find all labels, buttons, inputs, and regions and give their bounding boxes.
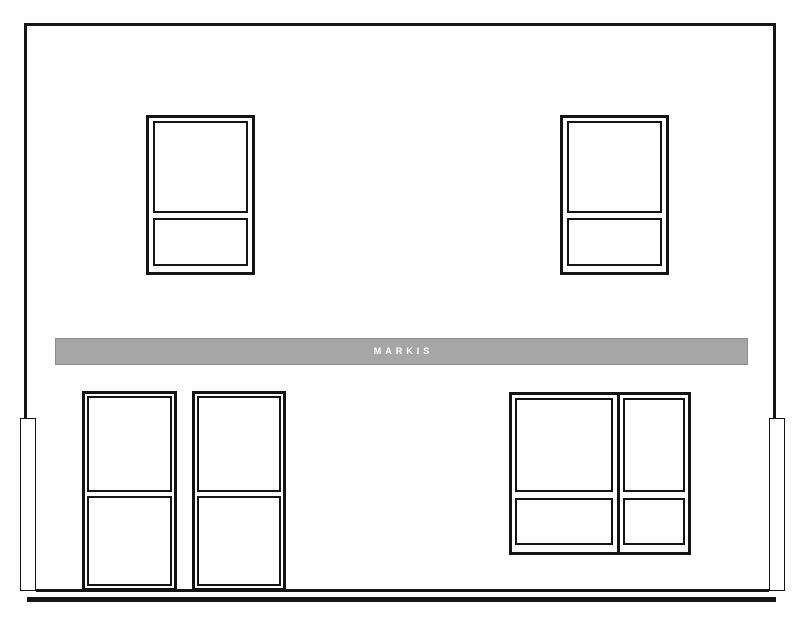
window-pane-tall-narrow bbox=[623, 398, 685, 492]
left-downspout bbox=[20, 418, 36, 591]
awning-band: MARKIS bbox=[55, 338, 748, 365]
awning-label: MARKIS bbox=[370, 347, 434, 356]
window-pane-bottom-right bbox=[623, 498, 685, 545]
window-pane-lower bbox=[567, 218, 662, 266]
upper-right-window bbox=[560, 115, 669, 275]
house-elevation-drawing: MARKIS bbox=[0, 0, 808, 626]
door-pane-lower bbox=[87, 496, 172, 586]
lower-right-window bbox=[509, 392, 691, 555]
door-left-leaf bbox=[82, 391, 177, 591]
window-mullion bbox=[617, 395, 620, 552]
door-pane-lower bbox=[197, 496, 281, 586]
threshold-line bbox=[36, 589, 769, 592]
door-right-leaf bbox=[192, 391, 286, 591]
window-pane-upper bbox=[153, 121, 248, 213]
window-pane-lower bbox=[153, 218, 248, 266]
window-pane-large bbox=[515, 398, 613, 492]
upper-left-window bbox=[146, 115, 255, 275]
window-pane-upper bbox=[567, 121, 662, 213]
right-downspout bbox=[769, 418, 785, 591]
door-pane-upper bbox=[197, 396, 281, 492]
window-pane-bottom-left bbox=[515, 498, 613, 545]
ground-line bbox=[27, 597, 776, 602]
door-pane-upper bbox=[87, 396, 172, 492]
